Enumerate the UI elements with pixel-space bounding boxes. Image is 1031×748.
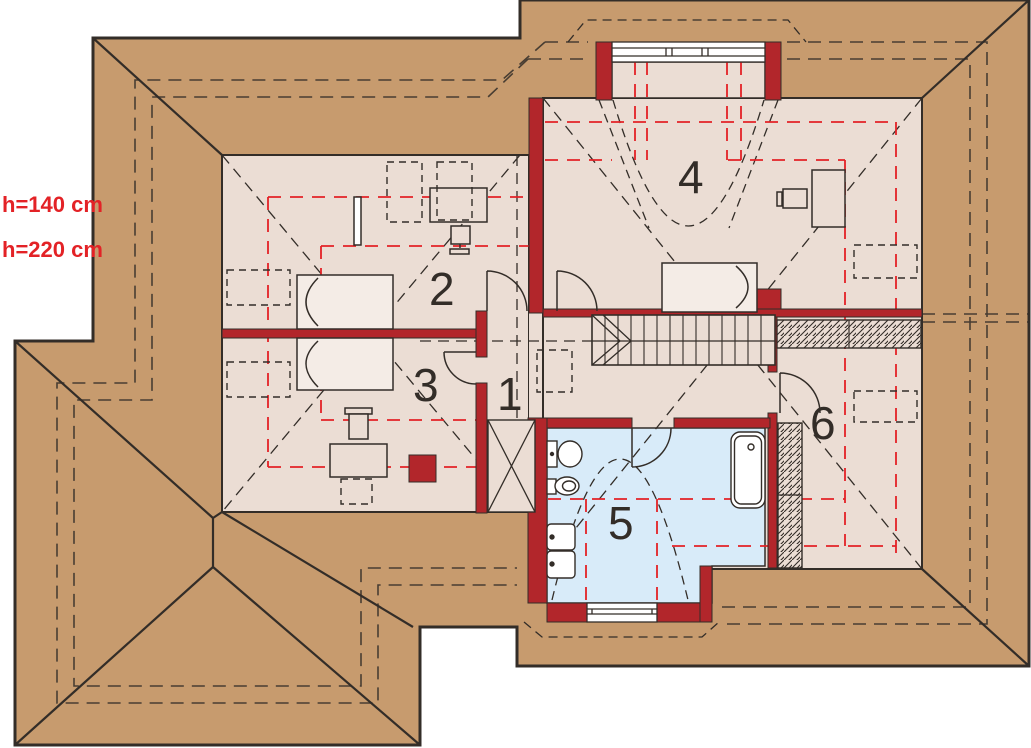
stairs [592,315,775,365]
wall-rooms-2-3-cap [476,311,487,357]
monitor-room2 [451,226,470,244]
wall-top-dormer-pier-left [596,42,612,100]
floor-plan-page: 1 2 3 4 5 6 h=140 cm h=220 cm [0,0,1031,748]
bathroom-window [587,603,657,622]
chair-room4 [783,189,807,208]
room-label-2: 2 [429,263,454,315]
bed-room4 [662,263,757,312]
chair-room3 [345,408,372,439]
wall-top-dormer-pier-right [765,42,781,100]
bed-room2 [297,275,393,329]
height-label-140: h=140 cm [2,192,103,217]
table-room3 [330,444,387,477]
floor-plan-drawing: 1 2 3 4 5 6 h=140 cm h=220 cm [0,0,1031,748]
room-label-5: 5 [608,497,633,549]
top-dormer-window [612,42,765,62]
keyboard-room2 [450,249,469,254]
wall-bath-top-left [540,418,632,428]
bidet [547,477,579,495]
chimney-room3 [409,455,436,482]
wall-room6-left [768,413,777,568]
room-label-1: 1 [497,368,522,420]
wall-bath-dormer-step [700,566,712,622]
double-sink [547,524,575,578]
toilet [547,441,582,467]
chimney-room4 [757,289,781,309]
wall-room3-hall [476,383,487,513]
wall-rooms-2-3-divider [222,329,476,338]
wall-bath-dormer-left [547,603,587,622]
room-label-4: 4 [678,151,703,203]
room-label-6: 6 [810,397,835,449]
height-label-220: h=220 cm [2,237,103,262]
bathtub [731,432,765,508]
shelf-room2 [354,197,361,245]
wall-hall-room4 [529,98,543,313]
room-label-3: 3 [413,359,438,411]
bed-room3 [297,338,393,390]
wall-bath-top-right [674,418,770,428]
